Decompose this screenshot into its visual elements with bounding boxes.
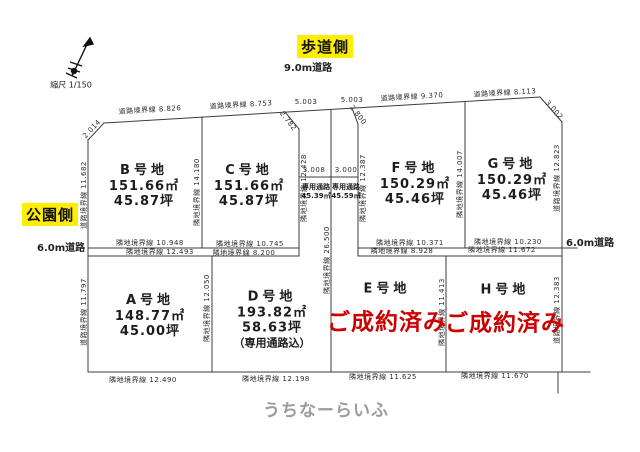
dim-passage-width-right: 3.000 bbox=[335, 166, 358, 174]
dim-f-right: 隣地境界線 14.007 bbox=[456, 150, 464, 218]
passage-left: 専用通路 45.39㎡ bbox=[301, 183, 330, 201]
passage-area: 45.59㎡ bbox=[331, 192, 360, 201]
plot-area-tsubo: 58.63坪 bbox=[234, 321, 311, 336]
plot-area-m2: 148.77㎡ bbox=[115, 309, 185, 324]
lot-layout-diagram: 縮尺 1/150 歩道側 9.0m道路 公園側 6.0m道路 6.0m道路 道路… bbox=[0, 0, 640, 452]
plot-name: G号地 bbox=[477, 157, 547, 173]
dim-mid-h: 隣地境界線 11.672 bbox=[468, 246, 536, 254]
left-side-label: 公園側 bbox=[22, 203, 78, 226]
dim-bottom-e: 隣地境界線 11.625 bbox=[349, 373, 417, 381]
passage-label: 専用通路 bbox=[301, 183, 330, 192]
plot-area-tsubo: 45.46坪 bbox=[380, 192, 450, 207]
plot-note: （専用通路込） bbox=[234, 336, 311, 351]
plot-f: F号地 150.29㎡ 45.46坪 bbox=[380, 161, 450, 207]
passage-right: 専用通路 45.59㎡ bbox=[331, 183, 360, 201]
sold-status: ご成約済み bbox=[445, 304, 565, 338]
dim-bottom-h: 隣地境界線 11.670 bbox=[461, 372, 529, 380]
plot-h: H号地 ご成約済み bbox=[445, 283, 565, 338]
plot-area-m2: 151.66㎡ bbox=[214, 179, 284, 194]
dim-mid-f: 隣地境界線 10.371 bbox=[376, 239, 444, 247]
dim-top-passage-right: 5.003 bbox=[341, 96, 364, 104]
dim-mid-c: 隣地境界線 10.745 bbox=[216, 240, 284, 248]
dim-mid-d: 隣地境界線 8.200 bbox=[213, 249, 276, 257]
dim-mid-e: 隣地境界線 8.928 bbox=[371, 247, 434, 255]
dim-left-top: 道路境界線 11.682 bbox=[80, 161, 88, 229]
dim-bottom-d: 隣地境界線 12.198 bbox=[242, 375, 310, 383]
compass-icon bbox=[66, 38, 93, 78]
plot-area-tsubo: 45.87坪 bbox=[109, 194, 179, 209]
plot-area-tsubo: 45.00坪 bbox=[115, 324, 185, 339]
top-road-width: 9.0m道路 bbox=[284, 59, 332, 74]
plot-a: A号地 148.77㎡ 45.00坪 bbox=[115, 293, 185, 339]
sold-status: ご成約済み bbox=[327, 303, 447, 337]
plot-name: D号地 bbox=[234, 290, 311, 306]
plot-area-m2: 150.29㎡ bbox=[477, 173, 547, 188]
dim-mid-a: 隣地境界線 12.493 bbox=[126, 248, 194, 256]
plot-name: E号地 bbox=[327, 282, 447, 298]
dim-mid-b: 隣地境界線 10.948 bbox=[116, 239, 184, 247]
plot-area-tsubo: 45.87坪 bbox=[214, 194, 284, 209]
watermark: うちなーらいふ bbox=[263, 396, 389, 421]
left-road-width: 6.0m道路 bbox=[37, 239, 85, 254]
dim-passage-width-left: 3.008 bbox=[303, 166, 326, 174]
top-side-label: 歩道側 bbox=[297, 35, 353, 58]
scale-note: 縮尺 1/150 bbox=[50, 80, 92, 91]
right-road-width: 6.0m道路 bbox=[566, 234, 614, 249]
plot-area-m2: 151.66㎡ bbox=[109, 179, 179, 194]
plot-c: C号地 151.66㎡ 45.87坪 bbox=[214, 163, 284, 209]
plot-area-m2: 150.29㎡ bbox=[380, 177, 450, 192]
plot-d: D号地 193.82㎡ 58.63坪 （専用通路込） bbox=[234, 290, 311, 351]
passage-label: 専用通路 bbox=[331, 183, 360, 192]
dim-a-right: 隣地境界線 12.050 bbox=[203, 274, 211, 342]
plot-name: B号地 bbox=[109, 163, 179, 179]
dim-mid-g: 隣地境界線 10.230 bbox=[474, 238, 542, 246]
dim-bottom-a: 隣地境界線 12.490 bbox=[109, 376, 177, 384]
plot-b: B号地 151.66㎡ 45.87坪 bbox=[109, 163, 179, 209]
plot-g: G号地 150.29㎡ 45.46坪 bbox=[477, 157, 547, 203]
dim-left-bottom: 道路境界線 11.797 bbox=[80, 278, 88, 346]
dim-right-top: 道路境界線 12.823 bbox=[553, 144, 561, 212]
plot-name: H号地 bbox=[445, 283, 565, 299]
passage-area: 45.39㎡ bbox=[301, 192, 330, 201]
plot-e: E号地 ご成約済み bbox=[327, 282, 447, 337]
plot-area-m2: 193.82㎡ bbox=[234, 306, 311, 321]
plot-name: F号地 bbox=[380, 161, 450, 177]
plot-area-tsubo: 45.46坪 bbox=[477, 188, 547, 203]
dim-top-passage-left: 5.003 bbox=[295, 98, 318, 106]
plot-name: C号地 bbox=[214, 163, 284, 179]
dim-b-right: 隣地境界線 14.180 bbox=[193, 158, 201, 226]
plot-name: A号地 bbox=[115, 293, 185, 309]
